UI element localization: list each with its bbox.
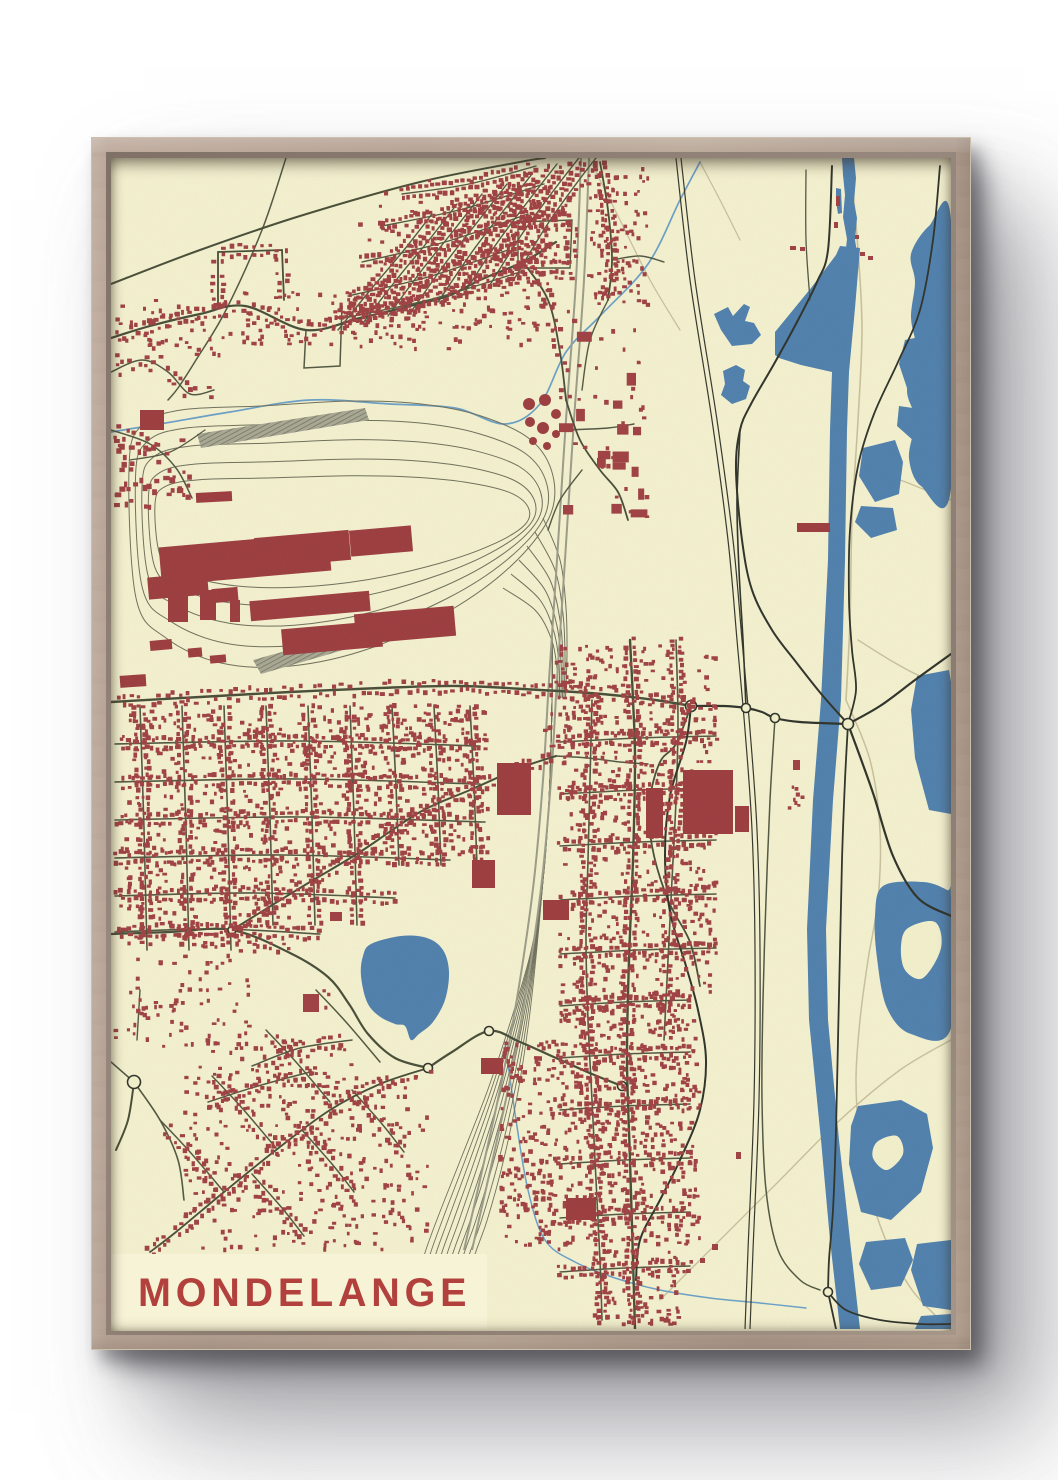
svg-text:MONDELANGE: MONDELANGE <box>138 1271 471 1315</box>
